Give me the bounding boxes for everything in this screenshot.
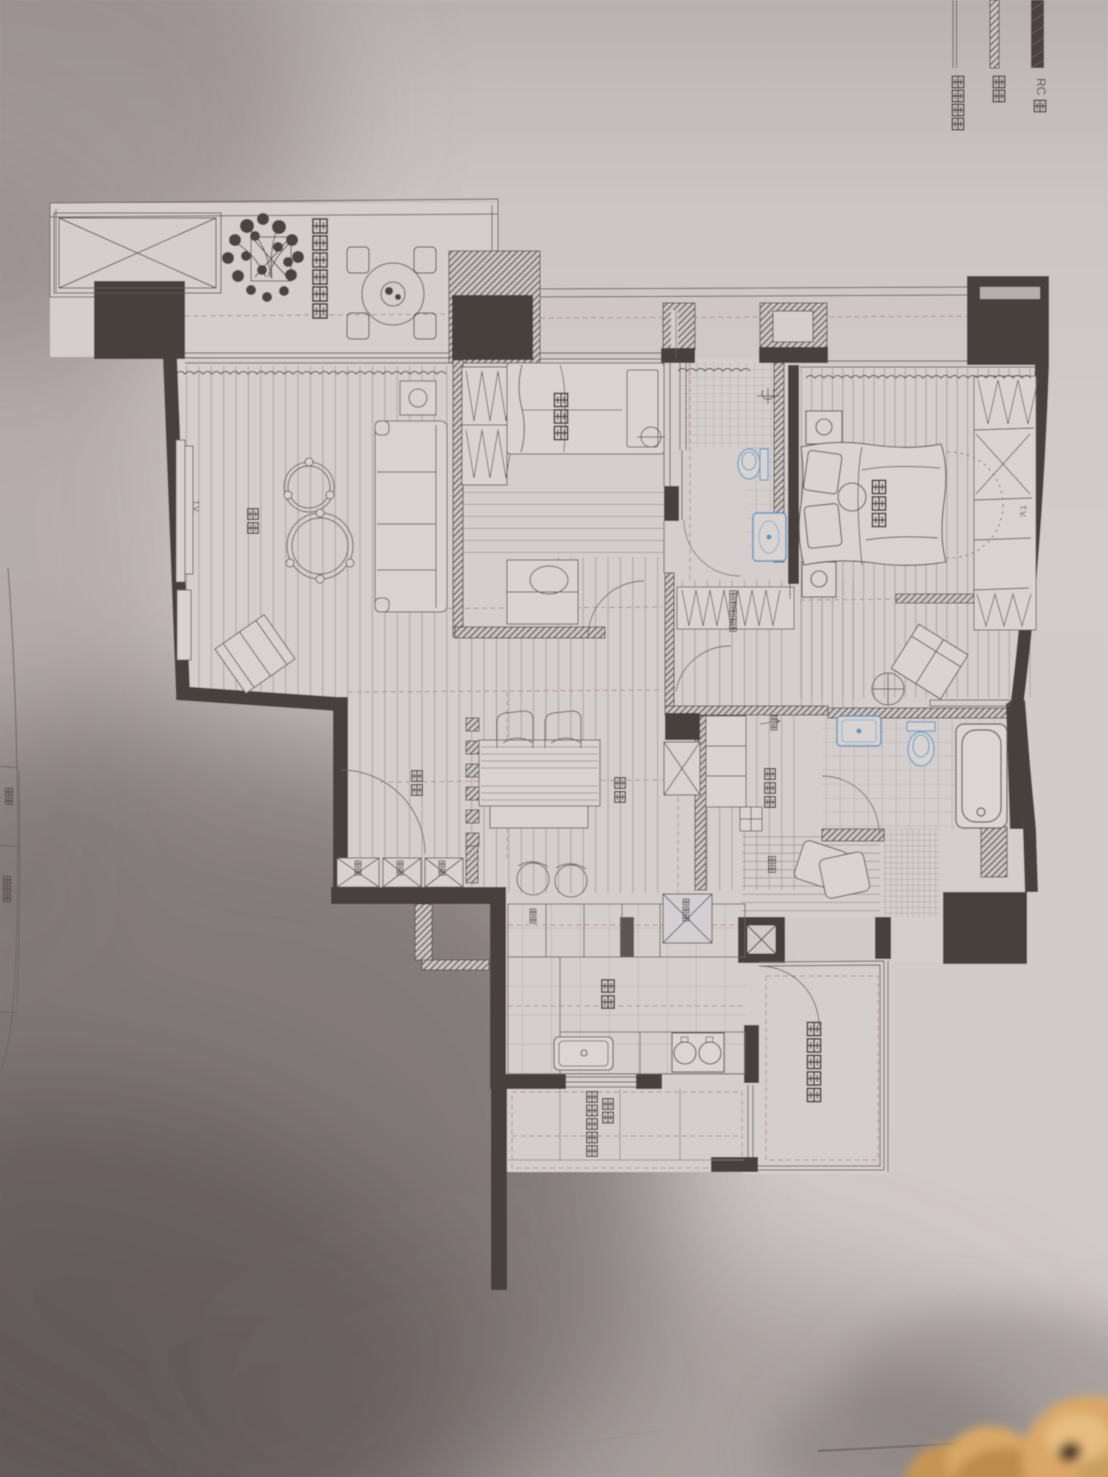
svg-text:T.V.: T.V.	[1018, 505, 1027, 518]
svg-text:T.V.: T.V.	[191, 500, 200, 513]
svg-text:RC: RC	[1034, 78, 1048, 96]
